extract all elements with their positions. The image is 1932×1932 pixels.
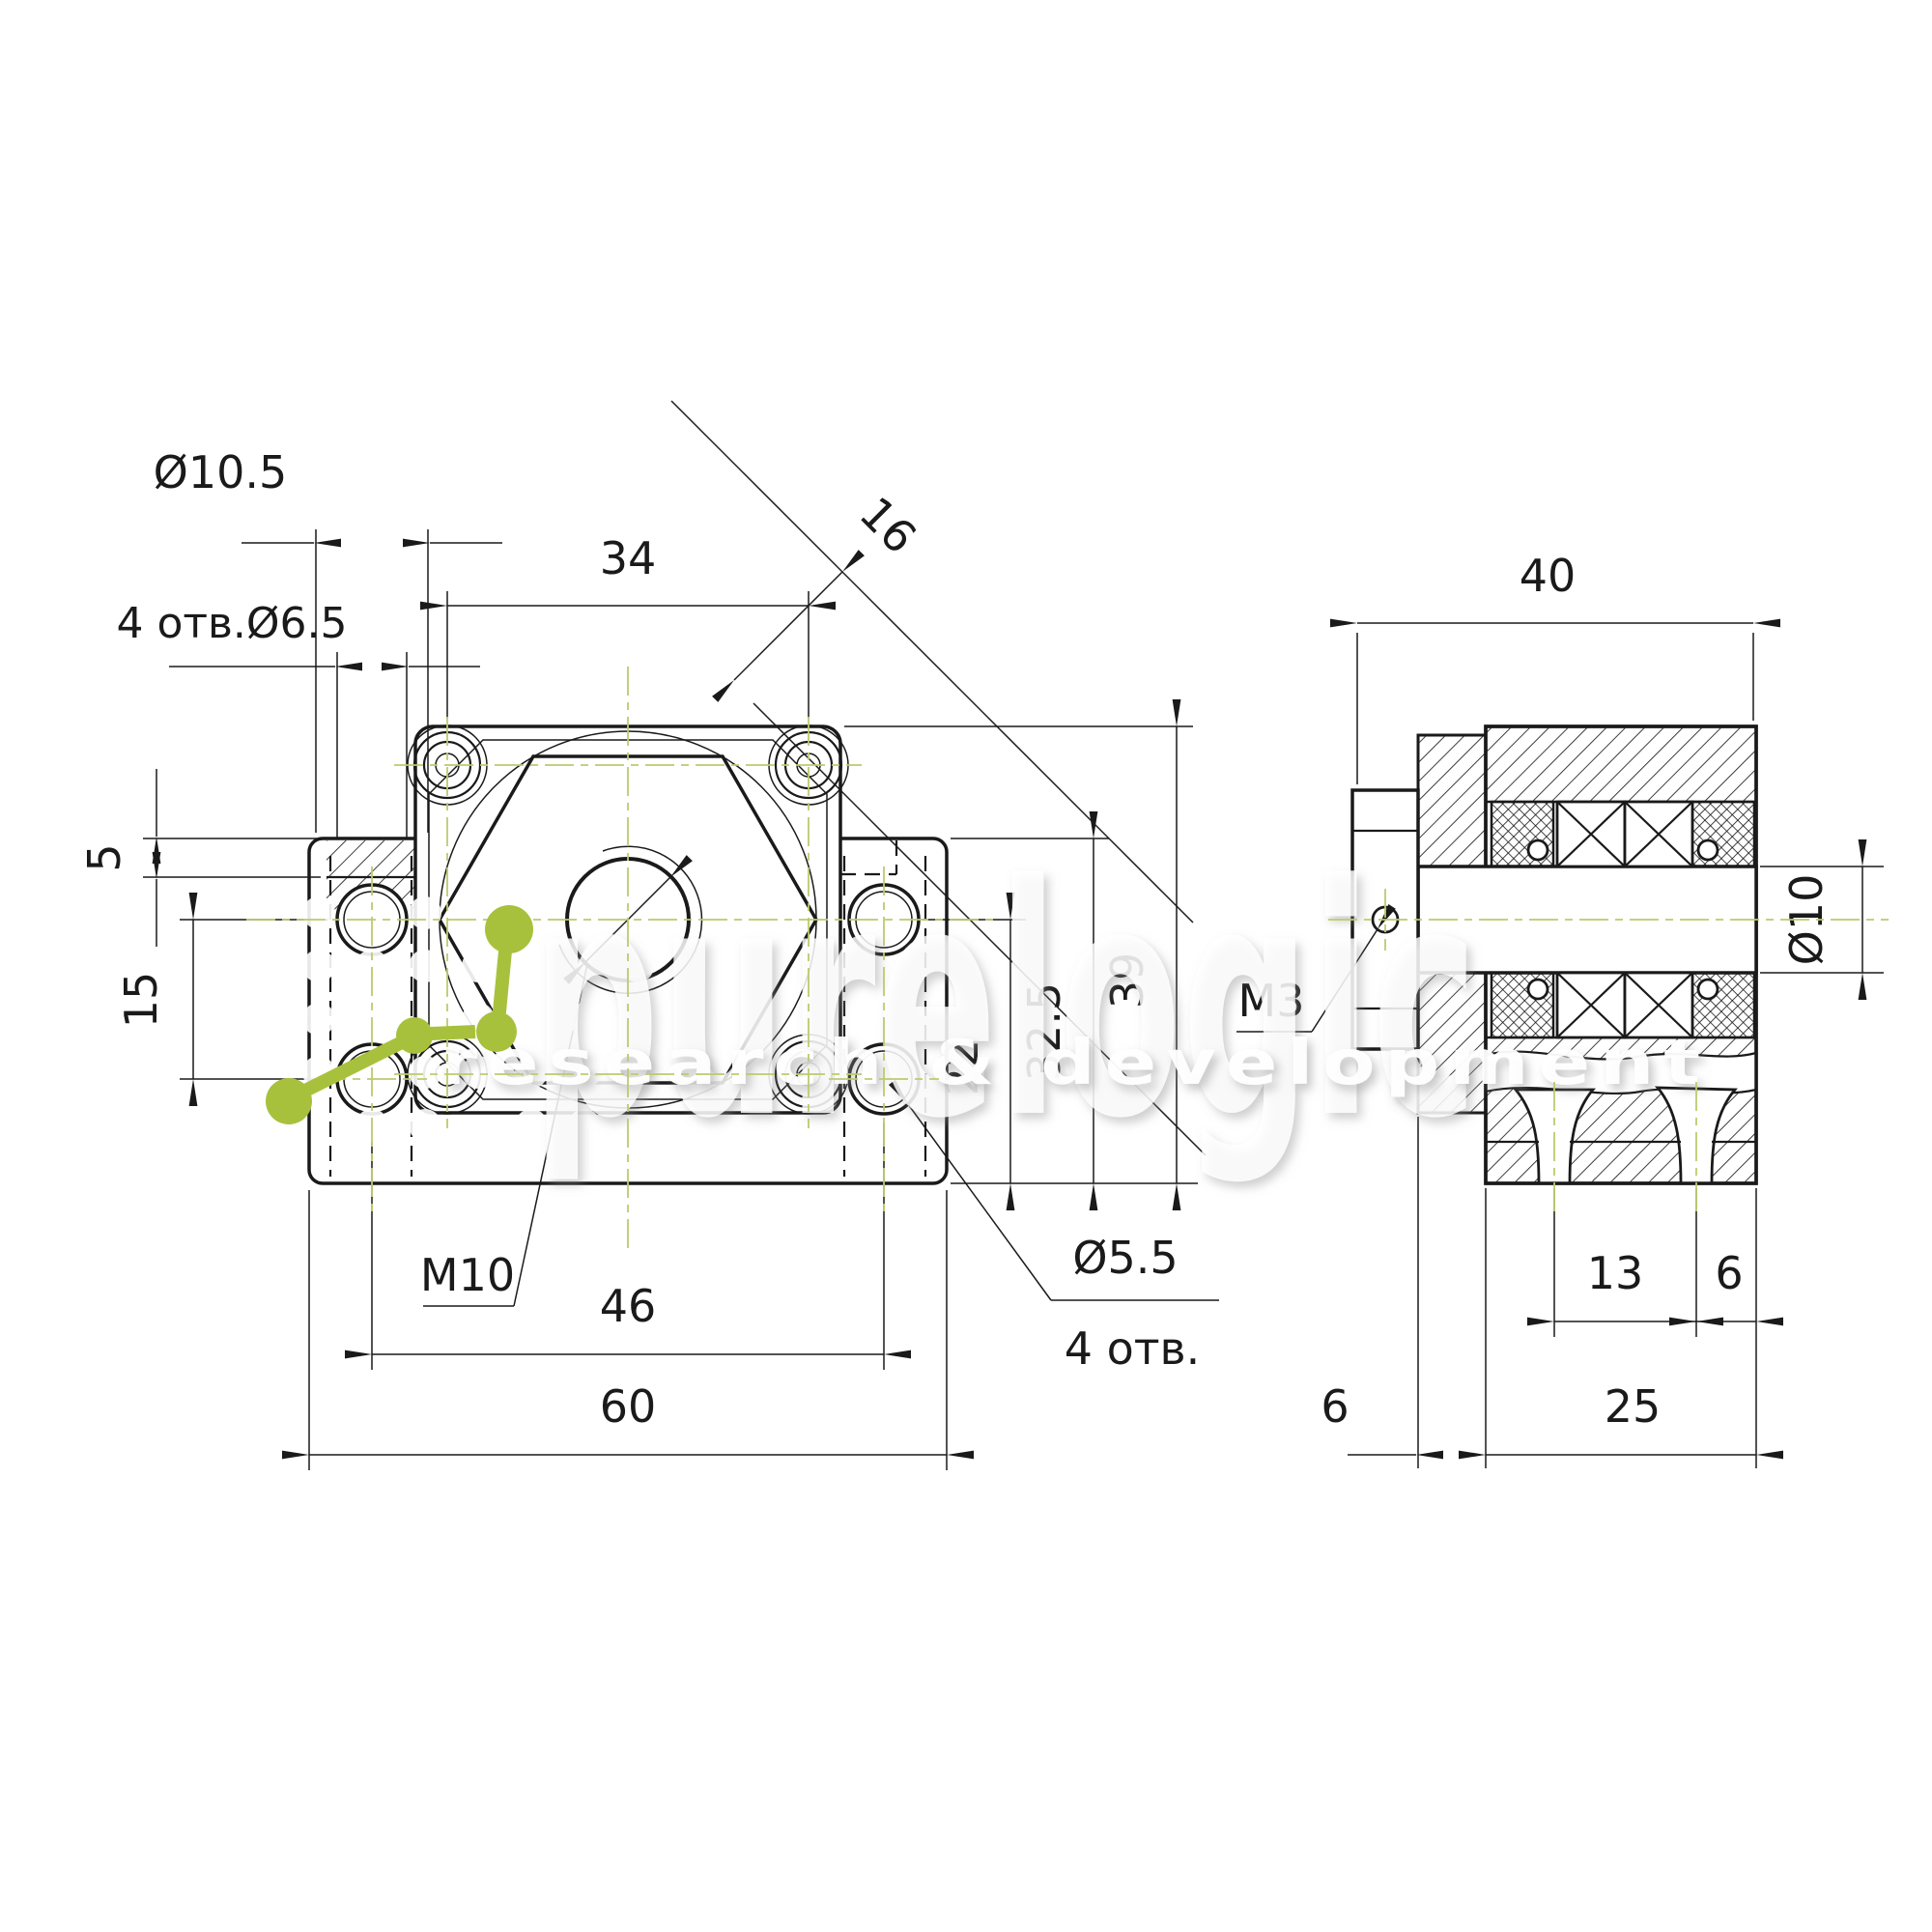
dim-label: 46 [600, 1280, 657, 1332]
technical-drawing: Ø10.5 4 отв.Ø6.5 34 16 [0, 0, 1932, 1932]
dim-label: 5 [78, 843, 130, 871]
dim-label: 6 [1715, 1247, 1743, 1299]
dim-label: 25 [1605, 1380, 1662, 1433]
drawing-page: Ø10.5 4 отв.Ø6.5 34 16 [0, 0, 1932, 1932]
dim-label: M10 [420, 1249, 515, 1301]
dim-label: 60 [600, 1380, 657, 1433]
dim-label: 4 отв. [1065, 1322, 1201, 1375]
dim-label: 6 [1321, 1380, 1349, 1433]
dim-label: Ø10.5 [154, 446, 288, 498]
dim-label: 4 отв.Ø6.5 [116, 599, 347, 648]
dim-label: 13 [1587, 1247, 1644, 1299]
dim-label: 15 [115, 972, 167, 1029]
watermark-tagline: research & development [440, 1028, 1710, 1099]
dim-label: Ø5.5 [1072, 1232, 1178, 1284]
dim-label: 40 [1520, 550, 1577, 602]
housing-top-wall [1486, 726, 1756, 802]
watermark-brand: purelogic [531, 817, 1478, 1188]
dim-label: 34 [600, 532, 657, 584]
